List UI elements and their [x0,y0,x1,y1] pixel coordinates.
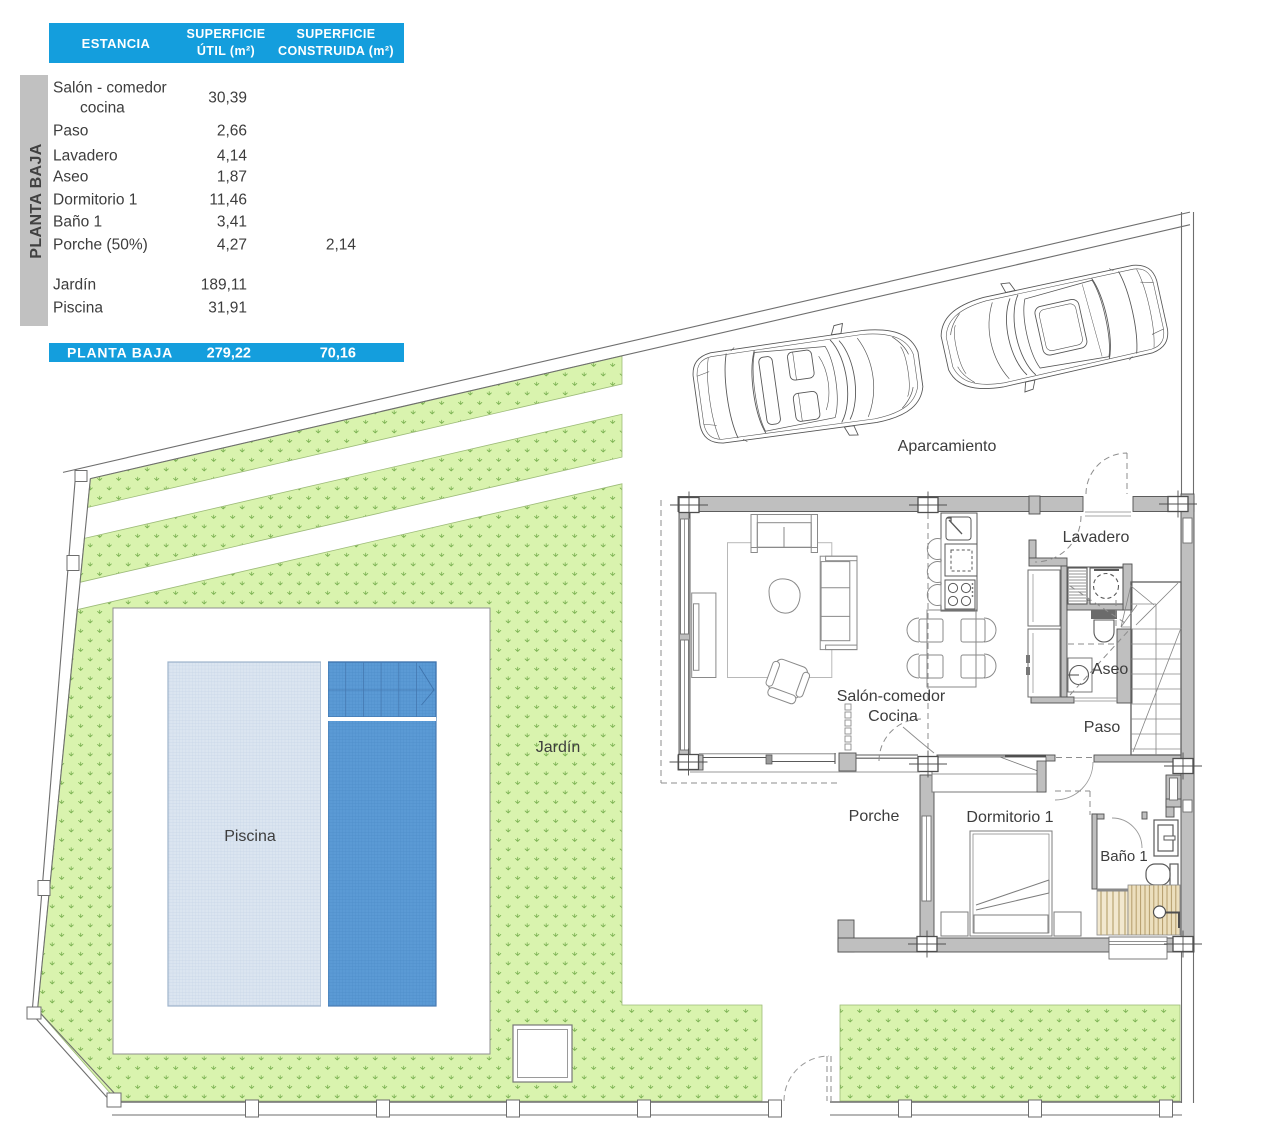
svg-text:Piscina: Piscina [224,828,276,845]
svg-text:1,87: 1,87 [217,169,247,186]
svg-text:PLANTA BAJA: PLANTA BAJA [67,345,173,361]
svg-text:CONSTRUIDA (m²): CONSTRUIDA (m²) [278,44,394,58]
svg-text:Lavadero: Lavadero [1063,529,1130,546]
svg-text:30,39: 30,39 [208,90,247,107]
svg-text:Paso: Paso [53,123,88,140]
svg-text:ESTANCIA: ESTANCIA [82,36,151,51]
svg-text:189,11: 189,11 [201,277,247,294]
svg-text:SUPERFICIE: SUPERFICIE [296,27,375,41]
svg-text:Cocina: Cocina [868,708,918,725]
svg-text:Paso: Paso [1084,719,1121,736]
svg-text:Baño 1: Baño 1 [1100,848,1148,865]
svg-text:Jardín: Jardín [53,277,96,294]
svg-text:Porche: Porche [849,808,900,825]
svg-text:4,14: 4,14 [217,148,248,165]
svg-text:Porche (50%): Porche (50%) [53,237,148,254]
svg-text:SUPERFICIE: SUPERFICIE [186,27,265,41]
svg-text:cocina: cocina [80,100,125,117]
svg-text:Aseo: Aseo [1092,661,1129,678]
svg-text:70,16: 70,16 [320,346,356,362]
svg-text:PLANTA BAJA: PLANTA BAJA [28,143,45,259]
svg-text:3,41: 3,41 [217,214,247,231]
svg-text:ÚTIL (m²): ÚTIL (m²) [197,43,255,58]
svg-text:4,27: 4,27 [217,237,247,254]
svg-text:Baño 1: Baño 1 [53,214,102,231]
svg-text:279,22: 279,22 [207,346,251,362]
svg-text:2,14: 2,14 [326,237,357,254]
svg-text:Aseo: Aseo [53,169,88,186]
svg-text:Lavadero: Lavadero [53,148,118,165]
svg-text:Salón - comedor: Salón - comedor [53,80,167,97]
svg-text:31,91: 31,91 [208,300,247,317]
svg-text:2,66: 2,66 [217,123,247,140]
svg-text:Aparcamiento: Aparcamiento [898,438,997,455]
svg-text:Piscina: Piscina [53,300,103,317]
svg-text:Dormitorio 1: Dormitorio 1 [53,192,137,209]
svg-text:Jardín: Jardín [536,739,580,756]
svg-text:Dormitorio 1: Dormitorio 1 [966,809,1053,826]
svg-text:11,46: 11,46 [209,192,247,209]
svg-text:Salón-comedor: Salón-comedor [837,688,946,705]
